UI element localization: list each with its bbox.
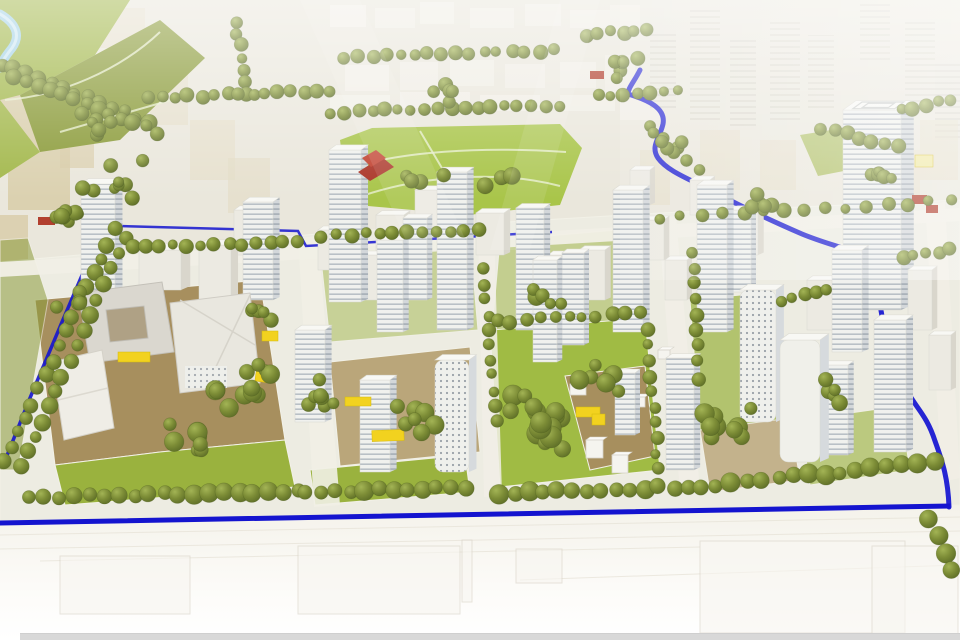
- tree: [472, 223, 486, 237]
- pavilion-roof: [586, 437, 607, 440]
- tree: [907, 454, 927, 474]
- tree: [313, 388, 328, 403]
- tree: [428, 480, 442, 494]
- building-side: [951, 331, 956, 390]
- tree: [831, 395, 847, 411]
- tree: [919, 510, 937, 528]
- tree: [6, 441, 19, 454]
- tree: [689, 323, 703, 337]
- tree: [487, 368, 497, 378]
- tree: [169, 487, 186, 504]
- building-roof: [874, 315, 913, 320]
- tree: [390, 399, 405, 414]
- tree: [753, 472, 770, 489]
- bottom-strip: [20, 633, 960, 640]
- tree: [20, 443, 36, 459]
- tree: [179, 239, 194, 254]
- tree: [13, 458, 29, 474]
- tree: [502, 315, 517, 330]
- building-roof: [740, 284, 784, 290]
- tree: [113, 247, 125, 259]
- tree: [30, 381, 43, 394]
- tree: [276, 235, 289, 248]
- tree: [443, 480, 458, 495]
- tree: [503, 403, 519, 419]
- tree: [168, 240, 178, 250]
- tree: [164, 418, 177, 431]
- tree: [943, 561, 960, 578]
- tree: [258, 306, 269, 317]
- tree: [275, 484, 291, 500]
- tree: [479, 293, 490, 304]
- tree: [799, 464, 818, 483]
- tree: [555, 298, 567, 310]
- tree: [926, 452, 944, 470]
- building-roof: [295, 325, 332, 330]
- tree: [243, 380, 259, 396]
- tree: [646, 386, 657, 397]
- tree: [35, 489, 51, 505]
- bottom-gray-bar: [20, 633, 960, 640]
- tree: [651, 449, 661, 459]
- tree: [535, 312, 547, 324]
- yellow-accent-building: [262, 331, 278, 341]
- tree: [550, 311, 562, 323]
- building-side: [403, 236, 409, 332]
- tower-building: [377, 240, 403, 332]
- tree: [565, 311, 575, 321]
- tree: [41, 397, 58, 414]
- tree: [54, 340, 66, 352]
- tree: [650, 402, 661, 413]
- midrise-building: [929, 335, 951, 390]
- tree: [701, 417, 720, 436]
- tower-building: [666, 358, 694, 470]
- tower-building: [780, 340, 820, 462]
- tree: [692, 373, 706, 387]
- building-roof: [929, 331, 956, 335]
- tree: [623, 483, 637, 497]
- tree: [327, 483, 342, 498]
- tree: [298, 485, 312, 499]
- tree: [691, 355, 703, 367]
- tree: [690, 293, 701, 304]
- tree: [744, 402, 757, 415]
- tree: [489, 387, 499, 397]
- tower-building: [874, 320, 906, 452]
- tree: [164, 432, 184, 452]
- tree: [520, 313, 533, 326]
- tree: [108, 221, 123, 236]
- midrise-building: [199, 245, 231, 300]
- tree: [408, 413, 421, 426]
- tower-building: [533, 260, 557, 362]
- tree: [243, 484, 261, 502]
- yellow-accent-building: [372, 429, 404, 441]
- tree: [331, 229, 342, 240]
- yellow-accent-building: [118, 352, 150, 362]
- tree: [400, 483, 415, 498]
- tree: [829, 384, 841, 396]
- ghost-context-building: [462, 540, 472, 602]
- tree: [643, 339, 653, 349]
- tree: [477, 262, 489, 274]
- pavilion-building: [612, 455, 628, 473]
- tree: [73, 296, 87, 310]
- tree: [643, 370, 657, 384]
- tree: [385, 226, 399, 240]
- tree: [48, 384, 62, 398]
- tree: [879, 458, 895, 474]
- building-side: [906, 315, 913, 452]
- building-side: [584, 249, 589, 345]
- tree: [354, 481, 374, 501]
- building-side: [390, 375, 397, 472]
- tree: [30, 431, 41, 442]
- tree: [692, 338, 705, 351]
- tree: [193, 437, 208, 452]
- context-wash: [620, 0, 960, 280]
- building-side: [848, 361, 854, 455]
- tree: [314, 231, 327, 244]
- tree: [597, 373, 616, 392]
- building-roof: [360, 375, 397, 380]
- building-roof: [562, 249, 589, 253]
- yellow-accent-building: [345, 397, 371, 406]
- tree: [209, 383, 225, 399]
- tree: [52, 369, 69, 386]
- tree: [63, 310, 78, 325]
- tree: [721, 473, 741, 493]
- tree: [328, 398, 339, 409]
- yellow-accent-building: [592, 414, 605, 425]
- tree: [54, 208, 70, 224]
- ghost-context-building: [298, 546, 460, 614]
- tree: [72, 339, 84, 351]
- tree: [548, 481, 565, 498]
- tree: [483, 338, 495, 350]
- tree: [776, 296, 787, 307]
- tree: [104, 261, 117, 274]
- tower-building: [740, 290, 776, 422]
- building-side: [469, 355, 476, 472]
- tree: [610, 483, 624, 497]
- tree: [361, 227, 372, 238]
- tree: [693, 480, 708, 495]
- tower-building: [435, 360, 469, 472]
- tree: [570, 370, 589, 389]
- tree: [593, 483, 608, 498]
- tree: [458, 480, 474, 496]
- tower-building: [562, 253, 584, 345]
- tree: [111, 487, 127, 503]
- tree: [250, 237, 263, 250]
- tree: [709, 480, 723, 494]
- tree: [95, 276, 112, 293]
- tree: [50, 301, 63, 314]
- tree: [478, 279, 490, 291]
- tower-building: [243, 202, 273, 300]
- tree: [530, 412, 551, 433]
- tree: [413, 424, 430, 441]
- tree: [652, 462, 664, 474]
- tree: [787, 293, 797, 303]
- tree: [313, 373, 326, 386]
- building-roof: [533, 256, 562, 260]
- tree: [375, 228, 386, 239]
- tree: [291, 235, 304, 248]
- tree: [97, 489, 112, 504]
- ghost-context-building: [60, 556, 190, 614]
- tree: [126, 239, 141, 254]
- tree: [634, 306, 647, 319]
- tree: [66, 487, 83, 504]
- masterplan-scene: [0, 0, 960, 640]
- tree: [818, 372, 833, 387]
- tree: [215, 483, 233, 501]
- tree: [246, 303, 257, 314]
- tree: [259, 482, 278, 501]
- tree: [22, 491, 35, 504]
- tree: [252, 358, 265, 371]
- tree: [206, 237, 220, 251]
- tree: [485, 355, 496, 366]
- building-side: [635, 369, 640, 435]
- tree: [152, 239, 166, 253]
- building-roof: [435, 355, 476, 360]
- tree: [577, 312, 587, 322]
- tree: [589, 311, 601, 323]
- tree: [139, 239, 154, 254]
- tree: [345, 229, 360, 244]
- tree: [314, 486, 328, 500]
- tree: [23, 398, 38, 413]
- tree: [52, 492, 66, 506]
- tree: [140, 485, 157, 502]
- tree: [580, 484, 595, 499]
- tree: [235, 239, 248, 252]
- tree: [12, 426, 23, 437]
- tree: [372, 481, 387, 496]
- tree: [690, 308, 705, 323]
- bottom-bar-edge: [20, 633, 960, 634]
- tree: [833, 467, 846, 480]
- tree: [930, 526, 949, 545]
- tree: [589, 359, 601, 371]
- tree: [667, 481, 683, 497]
- tree: [821, 284, 832, 295]
- tree: [641, 322, 655, 336]
- tree: [651, 431, 665, 445]
- bottom-road-zone: [0, 505, 960, 640]
- ghost-context-building: [516, 549, 562, 583]
- tree: [34, 414, 51, 431]
- tree: [773, 471, 787, 485]
- tree: [195, 241, 205, 251]
- tree: [491, 414, 504, 427]
- tree: [46, 355, 61, 370]
- courtyard-void: [106, 306, 148, 342]
- tree: [83, 488, 97, 502]
- tree: [643, 354, 656, 367]
- pavilion-roof: [612, 452, 632, 455]
- tree: [90, 294, 103, 307]
- tower-building: [360, 380, 390, 472]
- building-side: [605, 246, 611, 300]
- tree: [98, 237, 114, 253]
- tree: [488, 399, 502, 413]
- pavilion-building: [586, 440, 603, 458]
- tree: [726, 421, 743, 438]
- tree: [564, 482, 580, 498]
- tree: [650, 416, 661, 427]
- tree: [861, 458, 880, 477]
- tree: [489, 484, 509, 504]
- tree: [220, 398, 239, 417]
- tree: [545, 298, 556, 309]
- tree: [64, 354, 79, 369]
- tree: [618, 306, 632, 320]
- masterplan-render-image: [0, 0, 960, 640]
- tree: [650, 478, 666, 494]
- tree: [936, 544, 956, 564]
- building-roof: [780, 334, 829, 340]
- tree: [77, 323, 93, 339]
